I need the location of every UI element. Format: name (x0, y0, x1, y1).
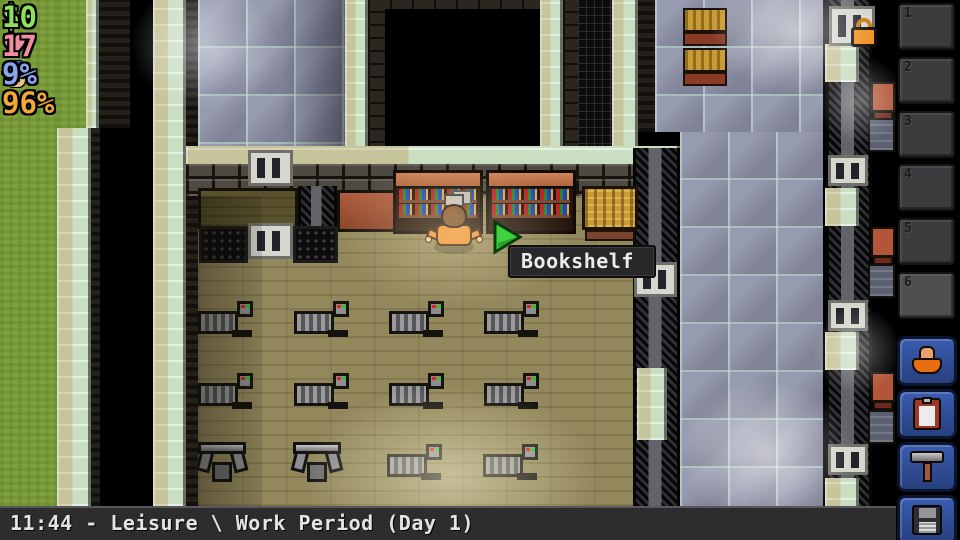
room-shading (280, 0, 345, 146)
objectives-button[interactable] (897, 389, 957, 439)
slot-number: 5 (904, 221, 912, 236)
save-button[interactable] (897, 495, 957, 540)
hud-guard-heat: 9% (2, 59, 28, 89)
hammer-icon (910, 451, 944, 483)
hover-tooltip: Bookshelf (508, 245, 656, 278)
floppy-disk-icon (912, 505, 942, 535)
desk-shelf (585, 230, 635, 241)
stone-frame (563, 0, 578, 148)
padlock-icon[interactable] (851, 27, 877, 47)
slot-number: 3 (904, 114, 912, 129)
inventory-slot-4[interactable]: 4 (898, 164, 955, 211)
cells-fence (826, 0, 872, 540)
player-character (428, 198, 480, 254)
inventory-slot-5[interactable]: 5 (898, 218, 955, 265)
prisoner-icon (911, 346, 943, 376)
money-value: 10 (2, 2, 37, 32)
slot-number: 1 (904, 6, 912, 21)
stone-frame (368, 0, 385, 148)
inventory-slot-1[interactable]: 1 (898, 3, 955, 50)
status-text: 11:44 - Leisure \ Work Period (Day 1) (10, 511, 474, 535)
energy-value: 96% (2, 88, 54, 118)
slot-number: 2 (904, 60, 912, 75)
wooden-desk[interactable] (683, 8, 727, 46)
wall-vent[interactable] (248, 223, 293, 259)
inventory-slot-2[interactable]: 2 (898, 57, 955, 104)
security-fence (633, 148, 680, 506)
inventory-slot-6[interactable]: 6 (898, 272, 955, 319)
wall-column (612, 0, 638, 148)
hud-stats: $ 10 ♥ 17 9% 96% (2, 0, 202, 130)
slot-number: 4 (904, 167, 912, 182)
wall-patch (637, 368, 667, 440)
wall-column (540, 0, 563, 148)
stone-frame-top (368, 0, 540, 9)
wall-vent[interactable] (248, 150, 293, 186)
prisoner-profile-button[interactable] (897, 336, 957, 386)
hud-energy: 96% (2, 88, 26, 118)
dark-room (385, 0, 540, 148)
corridor-tiles-top (655, 0, 823, 132)
wall-shadow (638, 0, 655, 132)
tooltip-label: Bookshelf (521, 249, 634, 273)
floor-grate[interactable] (199, 226, 248, 263)
mesh-fence (578, 0, 612, 148)
wall-shadow-left (91, 128, 100, 506)
guard-heat-value: 9% (2, 59, 37, 89)
clipboard-icon (913, 398, 941, 430)
floor-grate[interactable] (293, 226, 338, 263)
gold-desk[interactable] (582, 186, 638, 230)
game-screen: Bookshelf $ 10 ♥ 17 9% 96% 1 2 3 4 5 6 (0, 0, 960, 540)
corridor-tiles (680, 132, 823, 540)
wooden-desk[interactable] (683, 48, 727, 86)
inventory-sidebar: 1 2 3 4 5 6 (896, 0, 960, 540)
outer-wall-left (57, 128, 91, 506)
status-bar: 11:44 - Leisure \ Work Period (Day 1) (0, 506, 960, 540)
crafting-button[interactable] (897, 442, 957, 492)
wall-column (345, 0, 368, 148)
slot-number: 6 (904, 275, 912, 290)
inventory-slot-3[interactable]: 3 (898, 111, 955, 158)
